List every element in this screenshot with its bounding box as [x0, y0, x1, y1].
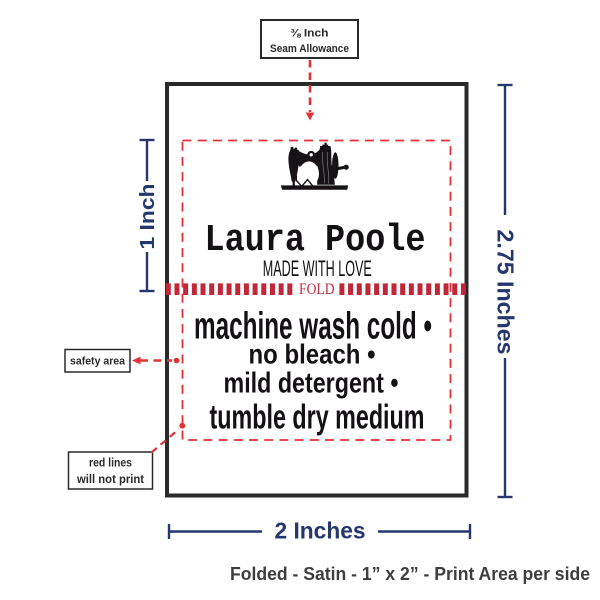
- svg-text:MADE WITH LOVE: MADE WITH LOVE: [263, 256, 372, 281]
- svg-text:tumble dry medium: tumble dry medium: [210, 399, 425, 437]
- svg-text:mild detergent •: mild detergent •: [224, 368, 399, 400]
- svg-text:2.75 Inches: 2.75 Inches: [493, 230, 519, 355]
- svg-text:1 Inch: 1 Inch: [137, 184, 159, 250]
- svg-text:Seam Allowance: Seam Allowance: [270, 43, 349, 55]
- svg-text:safety area: safety area: [70, 356, 126, 368]
- svg-text:no bleach •: no bleach •: [249, 339, 376, 370]
- svg-text:red lines: red lines: [89, 458, 132, 470]
- svg-text:⅜ Inch: ⅜ Inch: [291, 28, 329, 40]
- svg-text:2 Inches: 2 Inches: [275, 518, 366, 544]
- svg-text:will not print: will not print: [76, 474, 144, 486]
- svg-text:Folded - Satin - 1” x 2” - Pri: Folded - Satin - 1” x 2” - Print Area pe…: [230, 564, 590, 584]
- svg-text:FOLD: FOLD: [299, 281, 335, 298]
